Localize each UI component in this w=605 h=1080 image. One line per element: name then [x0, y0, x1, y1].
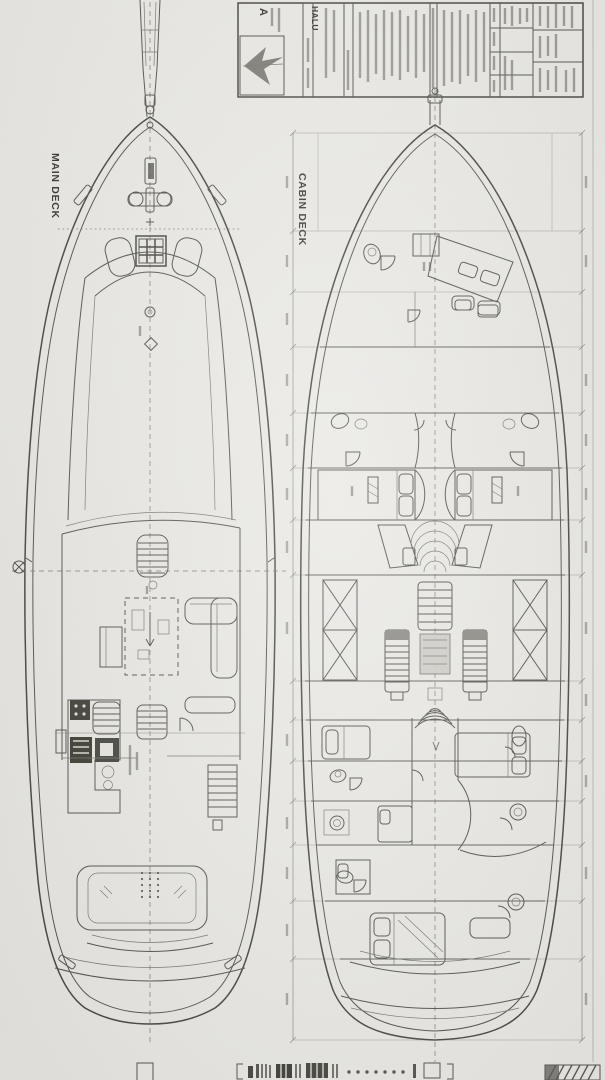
helm-console — [125, 586, 178, 675]
partial-box — [137, 1063, 153, 1080]
aft-cockpit-bench — [77, 866, 213, 952]
sink — [102, 766, 114, 778]
toilet-fwd — [361, 242, 383, 266]
aft-cabins-starboard — [455, 718, 546, 938]
dimension-grid — [287, 130, 586, 1043]
stern-cleat-starboard — [224, 954, 242, 969]
settee-starboard — [185, 598, 237, 678]
toilet — [329, 411, 351, 431]
bowsprit — [140, 0, 160, 128]
wardrobe — [368, 477, 378, 503]
drawing-sheet: MAIN DECK — [0, 0, 605, 1080]
toilet — [510, 804, 526, 820]
title-block: A HALU — [238, 3, 583, 97]
partial-hatched-bar — [545, 1065, 600, 1080]
bed — [455, 733, 530, 777]
door-swing — [498, 906, 510, 918]
illegible-text — [272, 8, 279, 32]
engine-starboard — [463, 630, 487, 700]
toilet — [519, 411, 541, 431]
wardrobe — [492, 477, 502, 503]
door-swing — [505, 747, 515, 757]
guest-cabin-starboard — [455, 411, 552, 520]
seat-aft — [185, 697, 235, 713]
curved-wall — [460, 842, 546, 856]
illegible-text — [308, 4, 574, 92]
fuel-tank-port — [323, 580, 357, 680]
door-swing — [180, 718, 193, 731]
door-swing — [500, 818, 512, 830]
illegible-label — [130, 745, 137, 775]
foredeck-skylight — [136, 236, 166, 266]
seat — [470, 918, 510, 938]
sink — [330, 816, 344, 830]
compass-logo-icon — [243, 47, 283, 85]
vent-diamond — [145, 338, 158, 351]
foredeck-seating — [68, 235, 232, 520]
sink — [355, 419, 367, 429]
door-swing — [346, 452, 360, 466]
vessel-name: HALU — [310, 6, 320, 31]
cabin-deck-plan: CABIN DECK — [296, 88, 569, 1062]
sink — [503, 419, 515, 429]
bed — [318, 470, 415, 520]
fuel-tank-starboard — [513, 580, 547, 680]
cabin-deck-label: CABIN DECK — [296, 173, 308, 246]
general-arrangement-drawing: MAIN DECK — [0, 0, 605, 1080]
boarding-ladder — [208, 765, 237, 830]
galley-stairs — [93, 702, 120, 734]
guest-cabin-port — [318, 411, 415, 520]
chart-table — [100, 627, 122, 667]
partial-marks — [237, 1063, 453, 1079]
door-swing — [381, 256, 395, 270]
door-swing — [408, 310, 420, 322]
bed — [455, 470, 552, 520]
door-swing — [412, 770, 423, 781]
main-deck-label: MAIN DECK — [49, 153, 61, 219]
stern-cleat-port — [58, 954, 76, 969]
dimension-ticks — [290, 130, 585, 1043]
curved-wall — [458, 780, 471, 850]
aft-master-bed — [370, 913, 445, 965]
title-block-logo: A — [240, 8, 284, 95]
shower — [512, 726, 526, 746]
crew-cabin — [361, 234, 513, 347]
bottom-strip — [137, 1063, 600, 1080]
main-deck-plan: MAIN DECK — [12, 0, 286, 1046]
logo-letter: A — [257, 8, 269, 16]
door-swing — [510, 452, 524, 466]
door-swing — [354, 880, 366, 892]
engine-port — [385, 630, 409, 700]
toilet — [329, 768, 348, 784]
toilet — [508, 894, 524, 910]
door-swing — [350, 778, 362, 790]
galley — [56, 700, 137, 813]
aft-stairs — [137, 705, 167, 739]
midship-lobby — [378, 521, 492, 572]
aft-cabins-port — [322, 718, 423, 894]
